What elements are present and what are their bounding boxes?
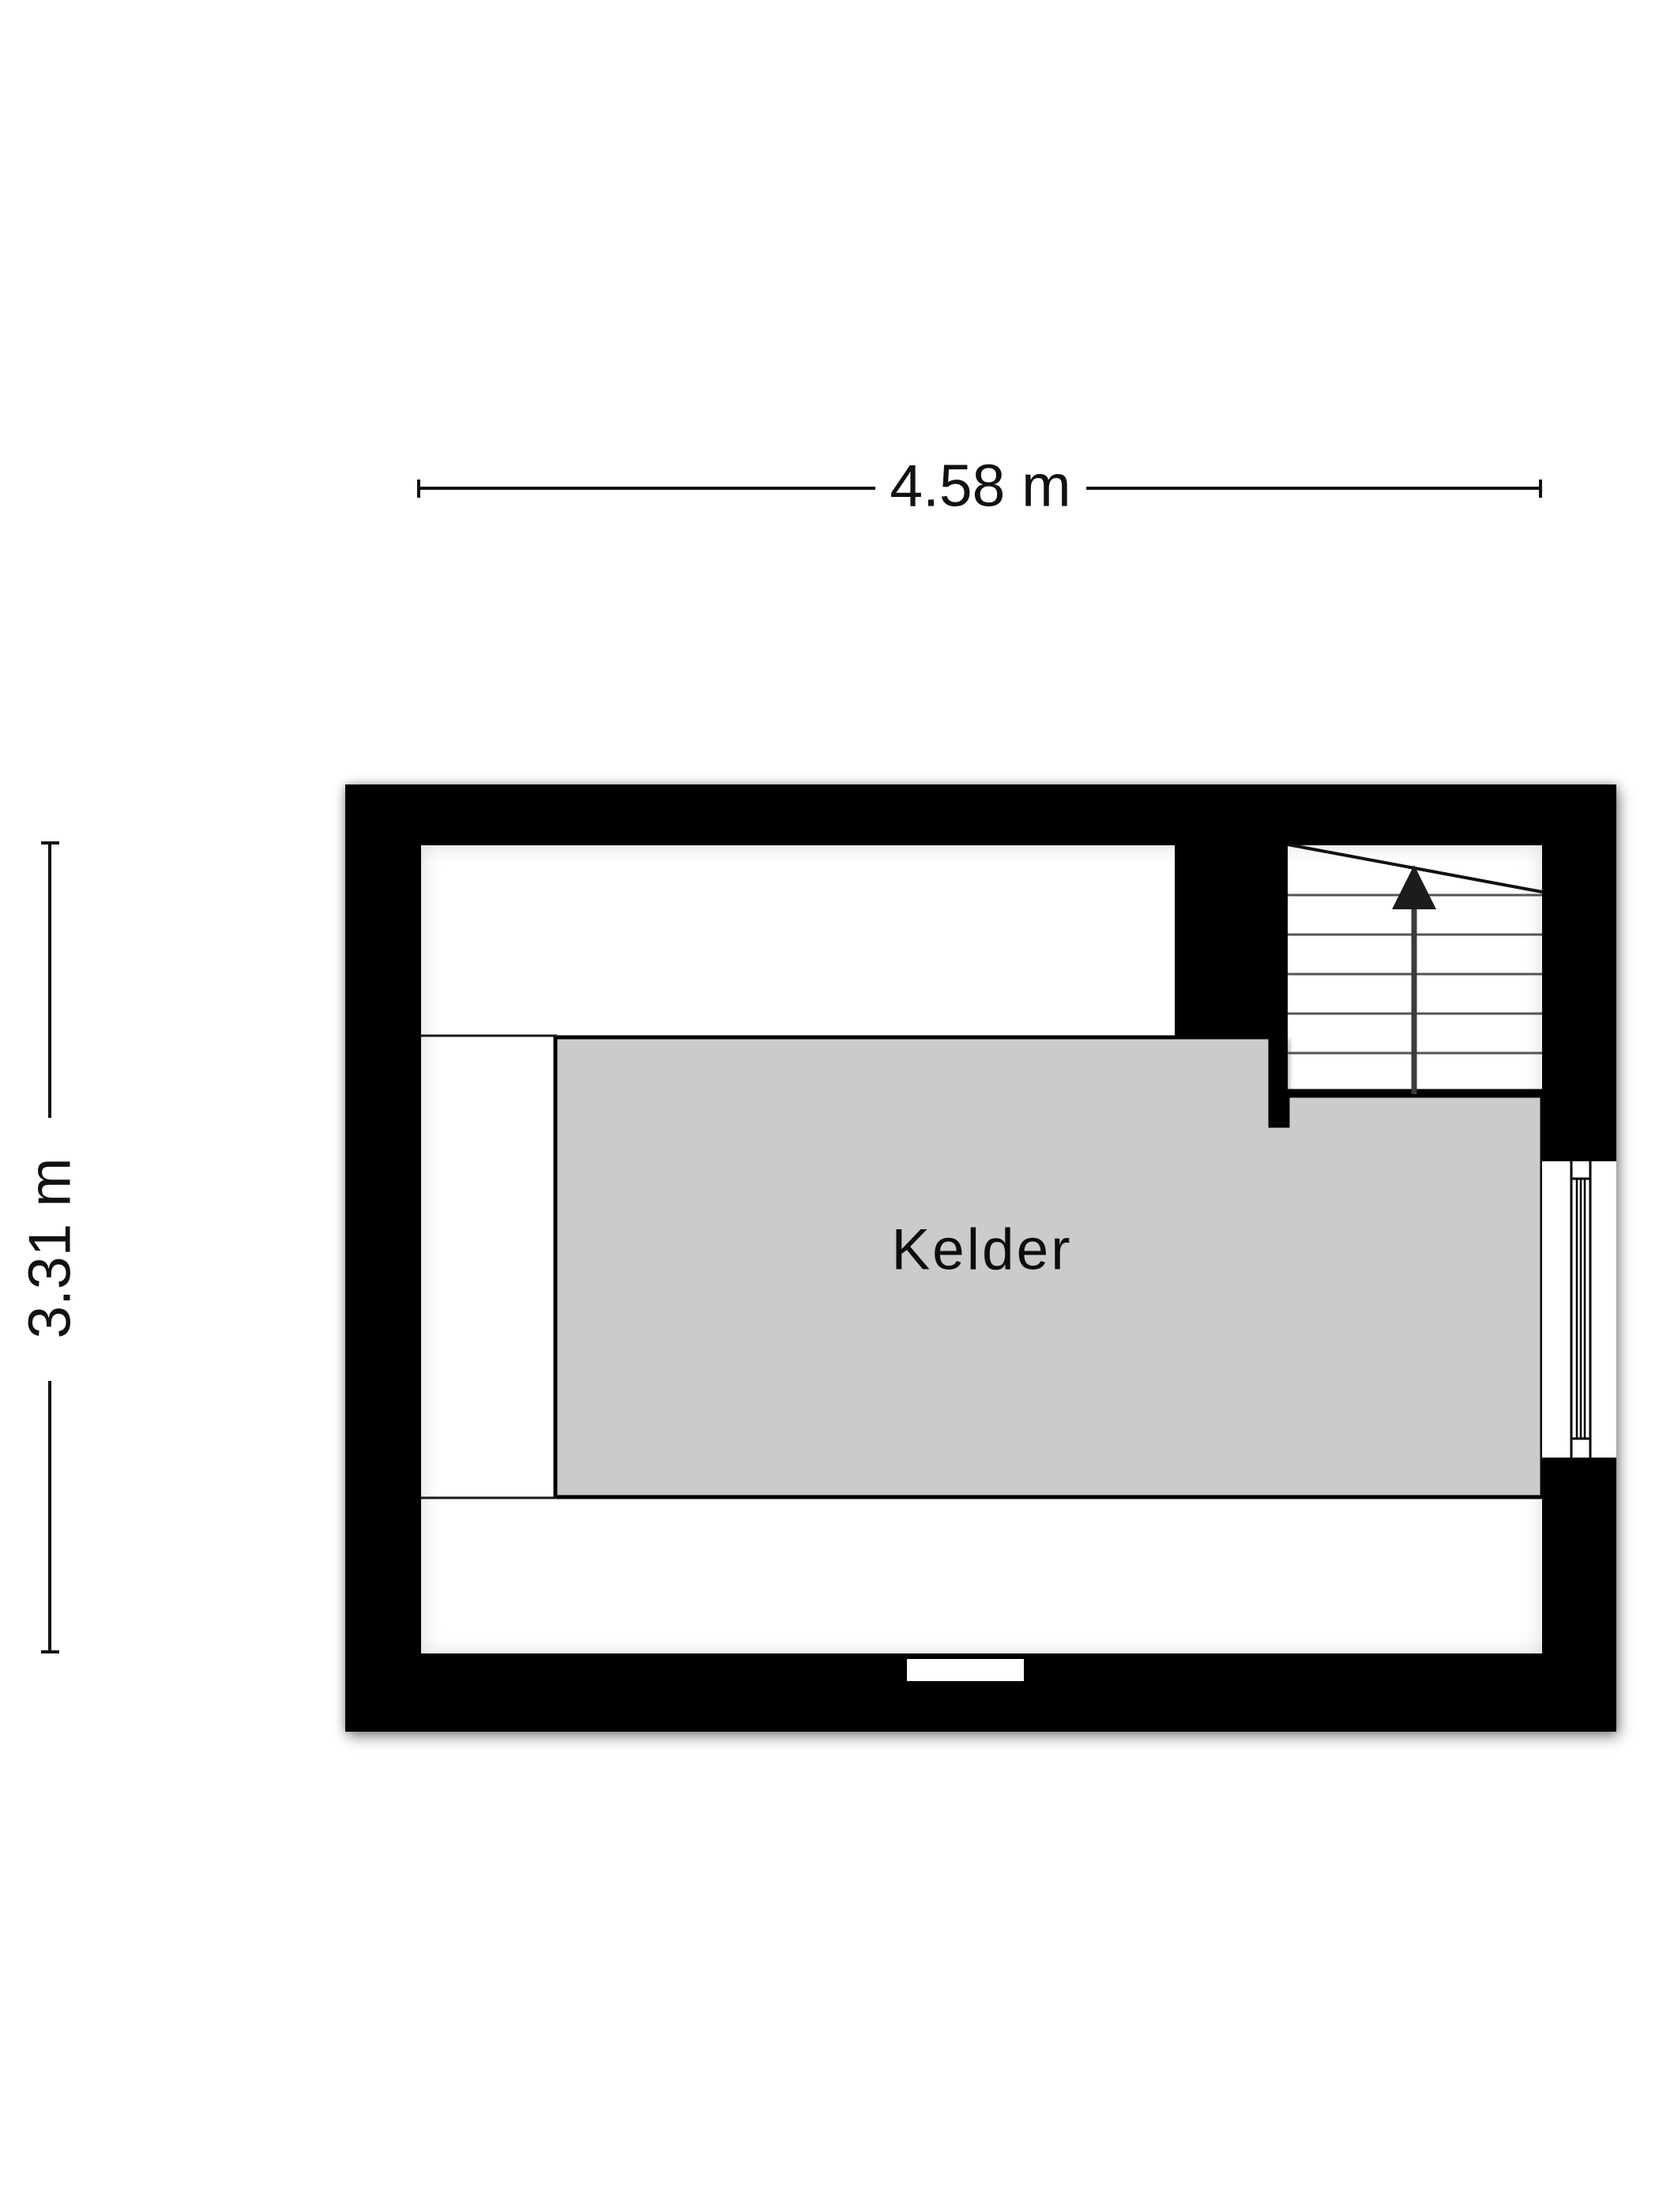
window-symbol [1542,1161,1616,1458]
room-label: Kelder [891,1221,1072,1279]
floorplan-page: 4.58 m 3.31 m [0,0,1659,2212]
floorplan-drawing [0,0,1659,2212]
wall-recess [907,1659,1024,1681]
window-opening [1542,1161,1616,1458]
stair-arrow-icon [1392,865,1436,1094]
